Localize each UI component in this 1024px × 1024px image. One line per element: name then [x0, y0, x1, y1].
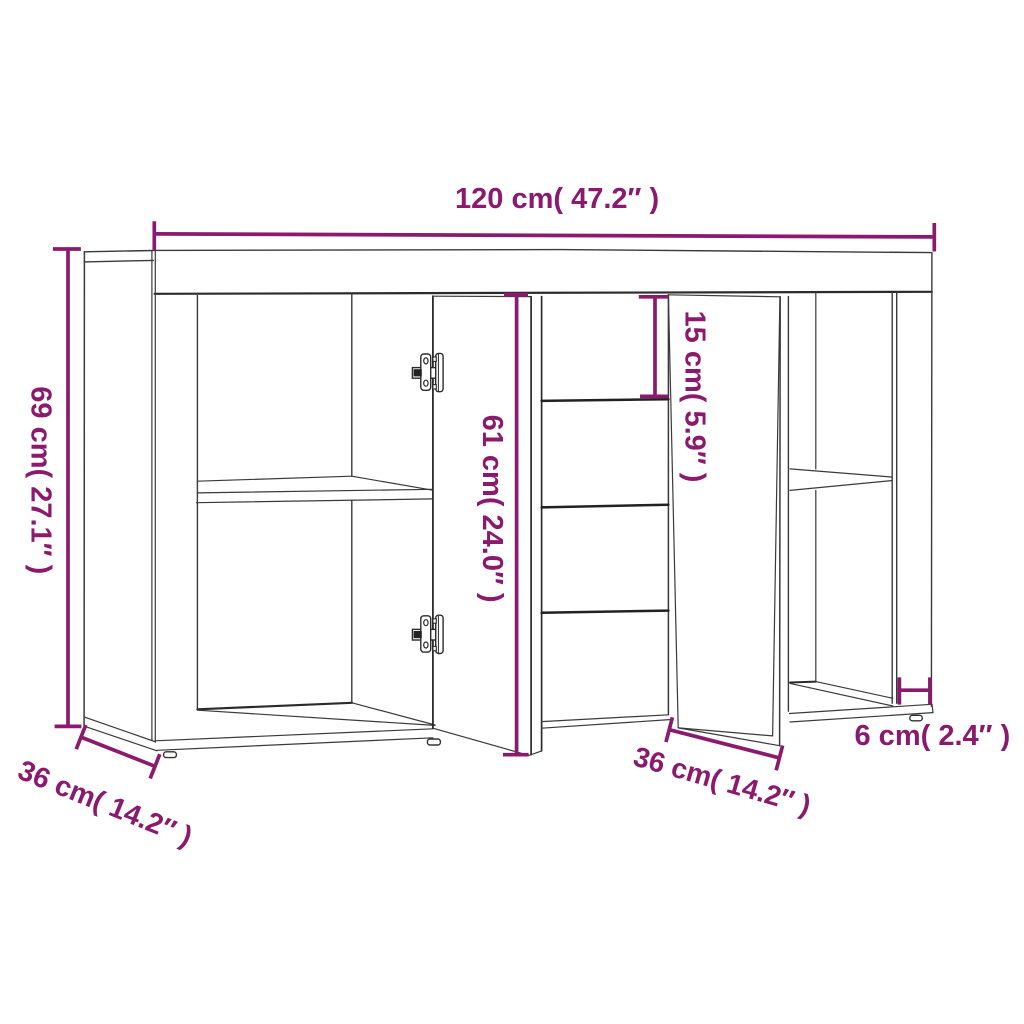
svg-text:120 cm( 47.2″ ): 120 cm( 47.2″ ): [455, 183, 659, 215]
svg-text:69 cm( 27.1″ ): 69 cm( 27.1″ ): [25, 386, 57, 574]
svg-text:6 cm( 2.4″ ): 6 cm( 2.4″ ): [855, 720, 1011, 752]
svg-text:15 cm( 5.9″ ): 15 cm( 5.9″ ): [679, 311, 711, 483]
svg-text:61 cm( 24.0″ ): 61 cm( 24.0″ ): [476, 415, 508, 603]
